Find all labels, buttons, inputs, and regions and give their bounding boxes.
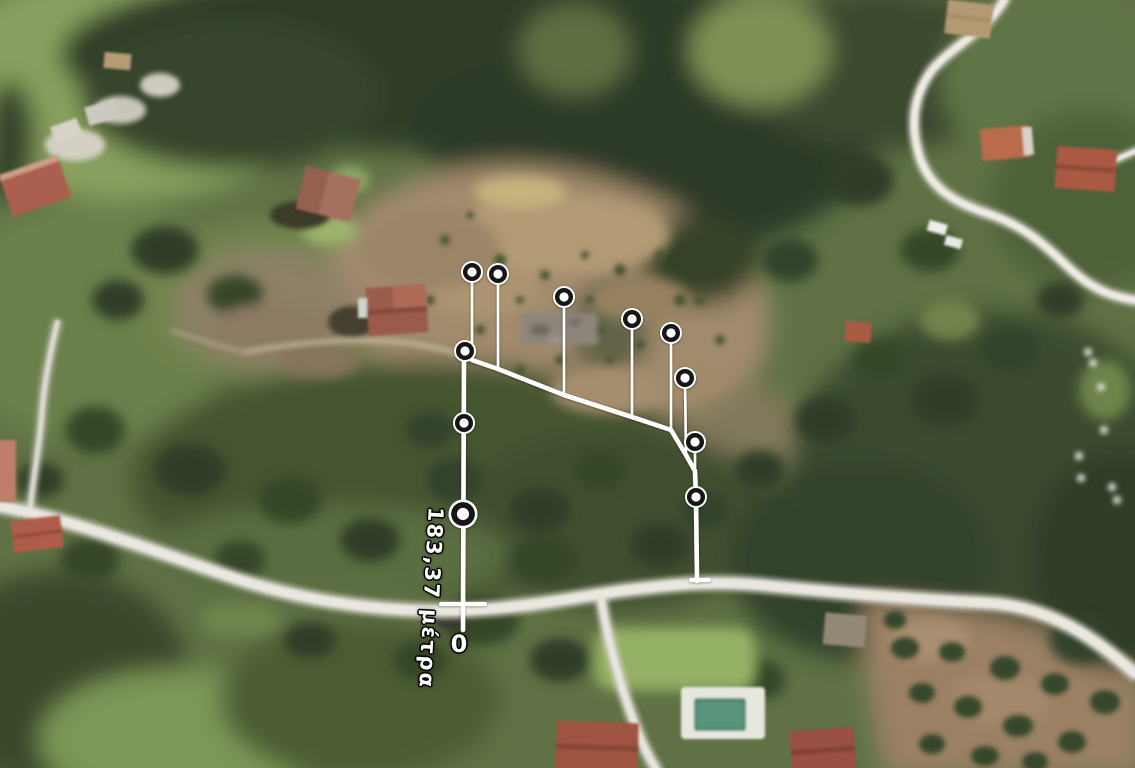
measurement-vertex-marker[interactable] (685, 486, 707, 508)
measurement-vertex-marker[interactable] (684, 431, 706, 453)
measurement-vertex-marker[interactable] (674, 367, 696, 389)
measurement-vertex-marker[interactable] (454, 340, 476, 362)
measurement-vertex-marker[interactable] (453, 412, 475, 434)
measurement-vertex-marker[interactable] (487, 263, 509, 285)
measurement-vertex-marker[interactable] (553, 286, 575, 308)
measurement-overlay (0, 0, 1135, 768)
measurement-vertex-marker[interactable] (621, 308, 643, 330)
measurement-vertex-marker[interactable] (461, 261, 483, 283)
measurement-vertex-marker[interactable] (660, 322, 682, 344)
measurement-vertex-marker[interactable] (449, 500, 478, 529)
measurement-path[interactable] (463, 352, 697, 630)
satellite-map-view: 183,37 μέτρα 0 (0, 0, 1135, 768)
